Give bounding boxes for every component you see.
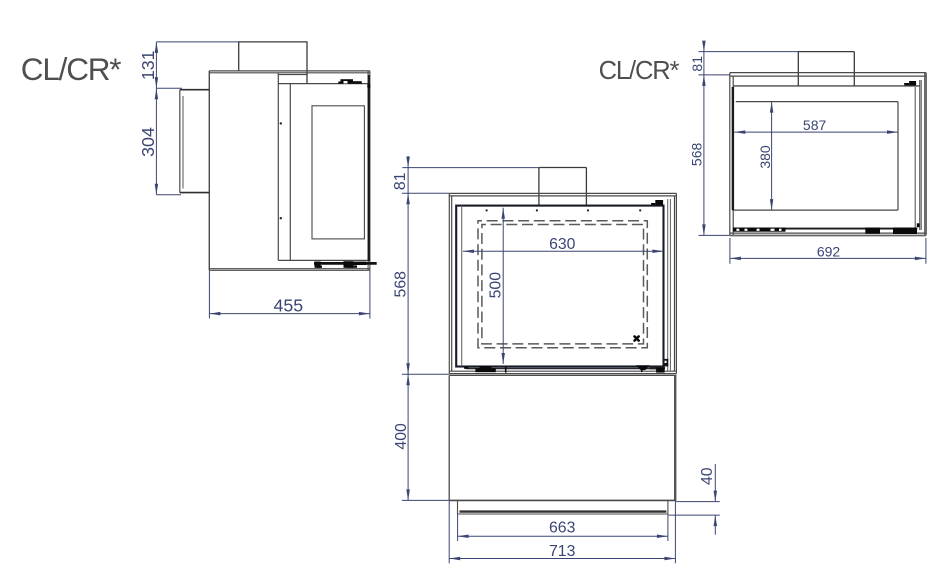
- svg-text:CL/CR*: CL/CR*: [21, 51, 122, 87]
- svg-text:40: 40: [699, 467, 716, 485]
- svg-text:131: 131: [138, 50, 158, 80]
- svg-text:713: 713: [549, 543, 576, 560]
- svg-text:500: 500: [487, 272, 504, 299]
- svg-text:455: 455: [273, 295, 303, 315]
- svg-text:587: 587: [803, 117, 827, 133]
- svg-text:380: 380: [757, 145, 773, 169]
- svg-text:304: 304: [138, 127, 158, 157]
- svg-text:568: 568: [689, 143, 705, 167]
- svg-text:81: 81: [689, 56, 705, 72]
- svg-text:692: 692: [817, 243, 841, 259]
- svg-text:81: 81: [392, 172, 409, 190]
- svg-text:568: 568: [393, 271, 410, 298]
- svg-text:400: 400: [393, 423, 410, 450]
- svg-text:CL/CR*: CL/CR*: [599, 57, 680, 85]
- svg-text:630: 630: [549, 236, 576, 253]
- svg-text:663: 663: [549, 520, 576, 537]
